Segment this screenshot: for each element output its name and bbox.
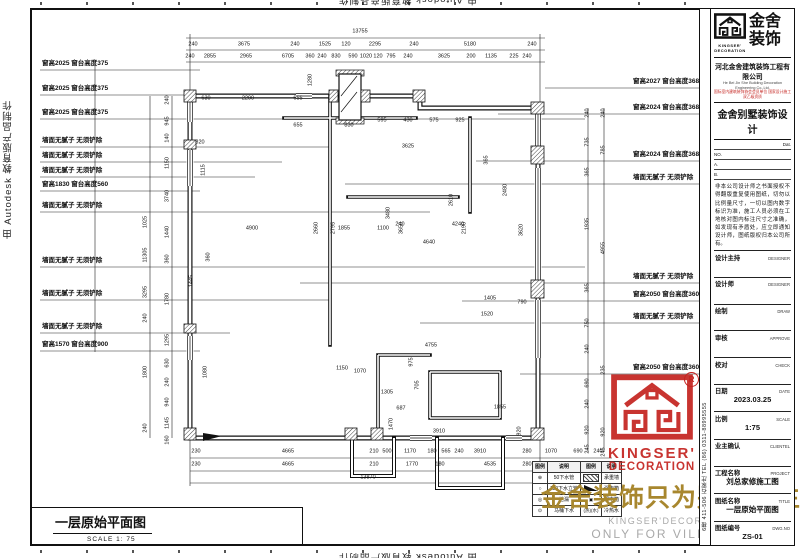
dim-label: 1070 bbox=[354, 369, 366, 375]
wall-note-right: 墙面无腻子 无须铲除 bbox=[633, 175, 693, 182]
dim-label: 2290 bbox=[242, 96, 254, 102]
dim-label: 1280 bbox=[308, 74, 314, 86]
dim-label: 240 bbox=[395, 222, 404, 228]
dim-label: 6705 bbox=[282, 54, 294, 60]
drawing-title: 一层原始平面图 bbox=[53, 512, 152, 534]
a-rule-line: A. bbox=[714, 160, 791, 170]
wall-note-left: 窗高2025 窗台高度375 bbox=[42, 61, 108, 68]
dim-label: 240 bbox=[143, 423, 149, 432]
dim-label: 590 bbox=[348, 54, 357, 60]
dim-label: 160 bbox=[165, 435, 171, 444]
dim-label: 360 bbox=[165, 254, 171, 263]
dim-label: 230 bbox=[191, 449, 200, 455]
dim-label: 1145 bbox=[165, 417, 171, 429]
dim-label: 4755 bbox=[425, 343, 437, 349]
dim-label: 687 bbox=[396, 406, 405, 412]
company-name-en: He Bei Jin She Building Decoration Engin… bbox=[714, 81, 791, 91]
dim-label: 1405 bbox=[484, 296, 496, 302]
dim-label: 4665 bbox=[282, 462, 294, 468]
dim-label: 180 bbox=[427, 449, 436, 455]
dim-label: 120 bbox=[341, 42, 350, 48]
dim-label: 1470 bbox=[389, 418, 395, 430]
dim-label: 2855 bbox=[204, 54, 216, 60]
dim-label: 1080 bbox=[203, 366, 209, 378]
dim-label: 500 bbox=[382, 449, 391, 455]
dim-label: 785 bbox=[601, 145, 607, 154]
dim-label: 1025 bbox=[143, 216, 149, 228]
dim-label: 735 bbox=[585, 137, 591, 146]
dim-label: 280 bbox=[522, 462, 531, 468]
wall-note-left: 墙面无腻子 无须铲除 bbox=[42, 153, 102, 160]
wall-note-right: 窗高2024 窗台高度368 bbox=[633, 152, 699, 159]
wall-note-left: 墙面无腻子 无须铲除 bbox=[42, 203, 102, 210]
wall-note-left: 窗高1830 窗台高度560 bbox=[42, 182, 108, 189]
dim-label: 1440 bbox=[165, 226, 171, 238]
dim-label: 3625 bbox=[402, 144, 414, 150]
dim-label: 240 bbox=[317, 54, 326, 60]
wall-note-right: 墙面无腻子 无须铲除 bbox=[633, 274, 693, 281]
dim-label: 975 bbox=[409, 357, 415, 366]
titleblock-field: 比例SCALE1:75 bbox=[714, 411, 791, 433]
dim-label: 750 bbox=[585, 318, 591, 327]
dim-label: 1070 bbox=[545, 449, 557, 455]
dim-label: 630 bbox=[165, 358, 171, 367]
dim-label: 920 bbox=[517, 426, 523, 435]
titleblock-field: 业主确认CLIENTEL bbox=[714, 439, 791, 461]
brand-cn-line1: 金舍 bbox=[749, 13, 781, 31]
dim-label: 2965 bbox=[240, 54, 252, 60]
brand-header: KINGSER' DECORATION 金舍 装饰 bbox=[714, 13, 791, 58]
dim-label: 240 bbox=[601, 108, 607, 117]
dim-label: 1305 bbox=[381, 390, 393, 396]
kingser-stamp: KINGSER' DECORATION bbox=[606, 374, 698, 474]
brand-en-line2: DECORATION bbox=[714, 49, 746, 54]
company-credentials: 国际室内建筑装饰协会会员单位 国家设计施工双乙级资质 bbox=[714, 90, 791, 103]
titleblock-address-strip: 6楼 411-506 石家庄 TEL (86) 0311-88995555 bbox=[700, 9, 711, 545]
dim-label: 240 bbox=[290, 42, 299, 48]
stamp-brand-line1: KINGSER' bbox=[606, 446, 698, 461]
dim-label: 5180 bbox=[464, 42, 476, 48]
wall-note-right: 墙面无腻子 无须铲除 bbox=[633, 314, 693, 321]
dim-label: 1100 bbox=[377, 226, 389, 232]
titleblock-field: 设计师DESIGNER bbox=[714, 277, 791, 299]
dim-label: 1170 bbox=[404, 449, 416, 455]
dim-label: 2610 bbox=[449, 194, 455, 206]
wall-note-left: 窗高1570 窗台高度900 bbox=[42, 342, 108, 349]
wall-note-left: 窗高2025 窗台高度375 bbox=[42, 86, 108, 93]
dim-label: 3480 bbox=[386, 207, 392, 219]
titleblock-fields: 设计主持DESIGNER设计师DESIGNER绘制DRAW审核APPROVE校对… bbox=[714, 250, 791, 543]
kingser-logo-small-icon bbox=[714, 13, 746, 39]
wall-note-right: 窗高2027 窗台高度368 bbox=[633, 79, 699, 86]
dim-label: 1770 bbox=[406, 462, 418, 468]
drawing-title-box: 一层原始平面图 SCALE 1: 75 bbox=[31, 507, 303, 544]
dim-label: 360 bbox=[305, 54, 314, 60]
dim-label: 2660 bbox=[314, 222, 320, 234]
dim-label: 2795 bbox=[331, 222, 337, 234]
dim-label: 655 bbox=[293, 123, 302, 129]
dim-label: 3620 bbox=[519, 224, 525, 236]
dim-label: 13870 bbox=[360, 475, 375, 481]
titleblock-field: 绘制DRAW bbox=[714, 304, 791, 326]
wall-note-left: 窗高2025 窗台高度375 bbox=[42, 110, 108, 117]
wall-note-right: 窗高2050 窗台高度360 bbox=[633, 365, 699, 372]
product-line: 金舍别墅装饰设计 bbox=[714, 103, 791, 140]
dim-label: 240 bbox=[409, 42, 418, 48]
dim-label: 280 bbox=[522, 449, 531, 455]
dim-label: 120 bbox=[373, 54, 382, 60]
dim-label: 920 bbox=[585, 425, 591, 434]
dim-label: 245 bbox=[585, 444, 591, 453]
dim-label: 1935 bbox=[585, 218, 591, 230]
no-rule-line: NO. bbox=[714, 150, 791, 160]
dim-label: 240 bbox=[585, 108, 591, 117]
dim-label: 11305 bbox=[143, 248, 149, 263]
dim-label: 1295 bbox=[165, 334, 171, 346]
dim-label: 240 bbox=[585, 399, 591, 408]
dim-label: 1780 bbox=[165, 293, 171, 305]
dim-label: 4535 bbox=[484, 462, 496, 468]
stamp-brand-line2: DECORATION bbox=[606, 461, 698, 474]
dim-label: 240 bbox=[185, 54, 194, 60]
dim-label: 2295 bbox=[369, 42, 381, 48]
dim-label: 3910 bbox=[433, 429, 445, 435]
dim-label: 1115 bbox=[201, 164, 207, 175]
wall-note-left: 墙面无腻子 无须铲除 bbox=[42, 291, 102, 298]
dim-label: 1520 bbox=[481, 312, 493, 318]
dim-label: 225 bbox=[509, 54, 518, 60]
dim-label: 795 bbox=[386, 54, 395, 60]
dim-label: 360 bbox=[206, 252, 212, 261]
dim-label: 13755 bbox=[352, 29, 367, 35]
dim-label: 140 bbox=[165, 133, 171, 142]
dim-label: 240 bbox=[522, 54, 531, 60]
dim-label: 925 bbox=[455, 118, 464, 124]
dim-label: 1150 bbox=[336, 366, 348, 372]
dim-label: 705 bbox=[415, 380, 421, 389]
titleblock-field: 校对CHECK bbox=[714, 357, 791, 379]
legend-header: 图例 bbox=[581, 462, 602, 473]
dim-label: 4955 bbox=[601, 242, 607, 254]
legend-header: 图例 bbox=[533, 462, 548, 473]
dim-label: 1020 bbox=[360, 54, 372, 60]
dim-label: 790 bbox=[517, 300, 526, 306]
titleblock-field: 审核APPROVE bbox=[714, 330, 791, 352]
company-name: 河北金舍建筑装饰工程有限公司 bbox=[714, 61, 791, 81]
dim-label: 2480 bbox=[503, 184, 509, 196]
dim-label: 575 bbox=[429, 118, 438, 124]
dim-label: 240 bbox=[403, 54, 412, 60]
dim-label: 3740 bbox=[165, 190, 171, 202]
brand-cn-line2: 装饰 bbox=[749, 31, 781, 49]
dim-label: 240 bbox=[165, 377, 171, 386]
b-rule-line: B. bbox=[714, 170, 791, 180]
dim-label: 4240 bbox=[452, 222, 464, 228]
dim-label: 1525 bbox=[319, 42, 331, 48]
dim-label: 690 bbox=[573, 449, 582, 455]
date-rule-line: Dat. bbox=[714, 140, 791, 150]
dim-label: 3295 bbox=[143, 286, 149, 298]
wall-note-left: 墙面无腻子 无须铲除 bbox=[42, 138, 102, 145]
dim-label: 655 bbox=[293, 96, 302, 102]
dim-label: 1800 bbox=[143, 366, 149, 378]
dim-label: 365 bbox=[484, 155, 490, 164]
dim-label: 4665 bbox=[282, 449, 294, 455]
dim-label: 690 bbox=[585, 378, 591, 387]
dim-label: 200 bbox=[466, 54, 475, 60]
dim-label: 1150 bbox=[165, 157, 171, 169]
dim-label: 4640 bbox=[423, 240, 435, 246]
dim-label: 1445 bbox=[189, 275, 195, 287]
dim-label: 830 bbox=[344, 123, 353, 129]
dim-label: 945 bbox=[165, 116, 171, 125]
wall-note-left: 墙面无腻子 无须铲除 bbox=[42, 324, 102, 331]
dim-label: 240 bbox=[188, 42, 197, 48]
dim-label: 1135 bbox=[485, 54, 497, 60]
wall-note-right: 窗高2050 窗台高度360 bbox=[633, 292, 699, 299]
kingser-logo-icon bbox=[608, 374, 696, 440]
dim-label: 180 bbox=[435, 462, 444, 468]
dim-label: 3910 bbox=[474, 449, 486, 455]
titleblock-field: 图纸名称TITLE一层原始平面图 bbox=[714, 493, 791, 515]
dim-label: 365 bbox=[585, 167, 591, 176]
dim-label: 240 bbox=[165, 95, 171, 104]
registered-trademark-icon: R bbox=[684, 372, 699, 387]
wall-note-left: 墙面无腻子 无须铲除 bbox=[42, 168, 102, 175]
copyright-disclaimer: 非本公司设计师之书面授权不得翻版重复使用图纸，切勿以比例量尺寸，一切以图内数字标… bbox=[714, 180, 791, 250]
dim-label: 820 bbox=[195, 140, 204, 146]
dim-label: 565 bbox=[441, 449, 450, 455]
dim-label: 365 bbox=[585, 283, 591, 292]
titleblock: 6楼 411-506 石家庄 TEL (86) 0311-88995555 KI… bbox=[699, 8, 795, 546]
dim-label: 240 bbox=[454, 449, 463, 455]
dim-label: 210 bbox=[369, 462, 378, 468]
dim-label: 595 bbox=[377, 118, 386, 124]
titleblock-field: 日期DATE2023.03.25 bbox=[714, 384, 791, 406]
dim-label: 630 bbox=[201, 96, 210, 102]
annotation-layer: 窗高2025 窗台高度375窗高2025 窗台高度375窗高2025 窗台高度3… bbox=[0, 0, 800, 558]
dim-label: 240 bbox=[585, 344, 591, 353]
dim-label: 4900 bbox=[246, 226, 258, 232]
drawing-scale: SCALE 1: 75 bbox=[87, 536, 302, 543]
dim-label: 3675 bbox=[238, 42, 250, 48]
drawing-sheet: 由 Autodesk 教育版产品制作 由 Autodesk 教育版产品制作 由 … bbox=[0, 0, 800, 558]
dim-label: 1855 bbox=[338, 226, 350, 232]
dim-label: 940 bbox=[165, 397, 171, 406]
dim-label: 830 bbox=[331, 54, 340, 60]
titleblock-field: 工程名称PROJECT刘总家修施工图 bbox=[714, 466, 791, 488]
wall-note-right: 窗高2024 窗台高度368 bbox=[633, 105, 699, 112]
dim-label: 240 bbox=[143, 313, 149, 322]
titleblock-field: 设计主持DESIGNER bbox=[714, 250, 791, 272]
titleblock-field: 图纸编号DWG.NOZS-01 bbox=[714, 521, 791, 543]
dim-label: 240 bbox=[527, 42, 536, 48]
dim-label: 1855 bbox=[494, 405, 506, 411]
dim-label: 3625 bbox=[438, 54, 450, 60]
wall-note-left: 墙面无腻子 无须铲除 bbox=[42, 258, 102, 265]
company-address: 6楼 411-506 石家庄 TEL (86) 0311-88995555 bbox=[701, 11, 709, 531]
legend-header: 说明 bbox=[548, 462, 581, 473]
dim-label: 430 bbox=[403, 118, 412, 124]
dim-label: 230 bbox=[191, 462, 200, 468]
dim-label: 210 bbox=[369, 449, 378, 455]
